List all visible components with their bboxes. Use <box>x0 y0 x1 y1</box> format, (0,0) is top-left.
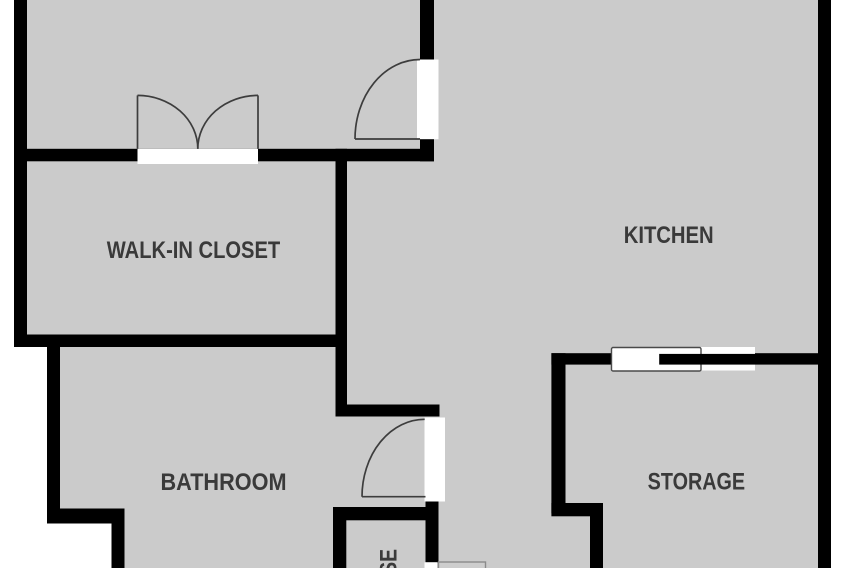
svg-text:STAIRCASE: STAIRCASE <box>376 549 403 568</box>
svg-text:BATHROOM: BATHROOM <box>161 469 287 496</box>
svg-text:STORAGE: STORAGE <box>648 469 746 496</box>
svg-text:KITCHEN: KITCHEN <box>624 222 714 249</box>
svg-text:WALK-IN CLOSET: WALK-IN CLOSET <box>107 237 281 264</box>
